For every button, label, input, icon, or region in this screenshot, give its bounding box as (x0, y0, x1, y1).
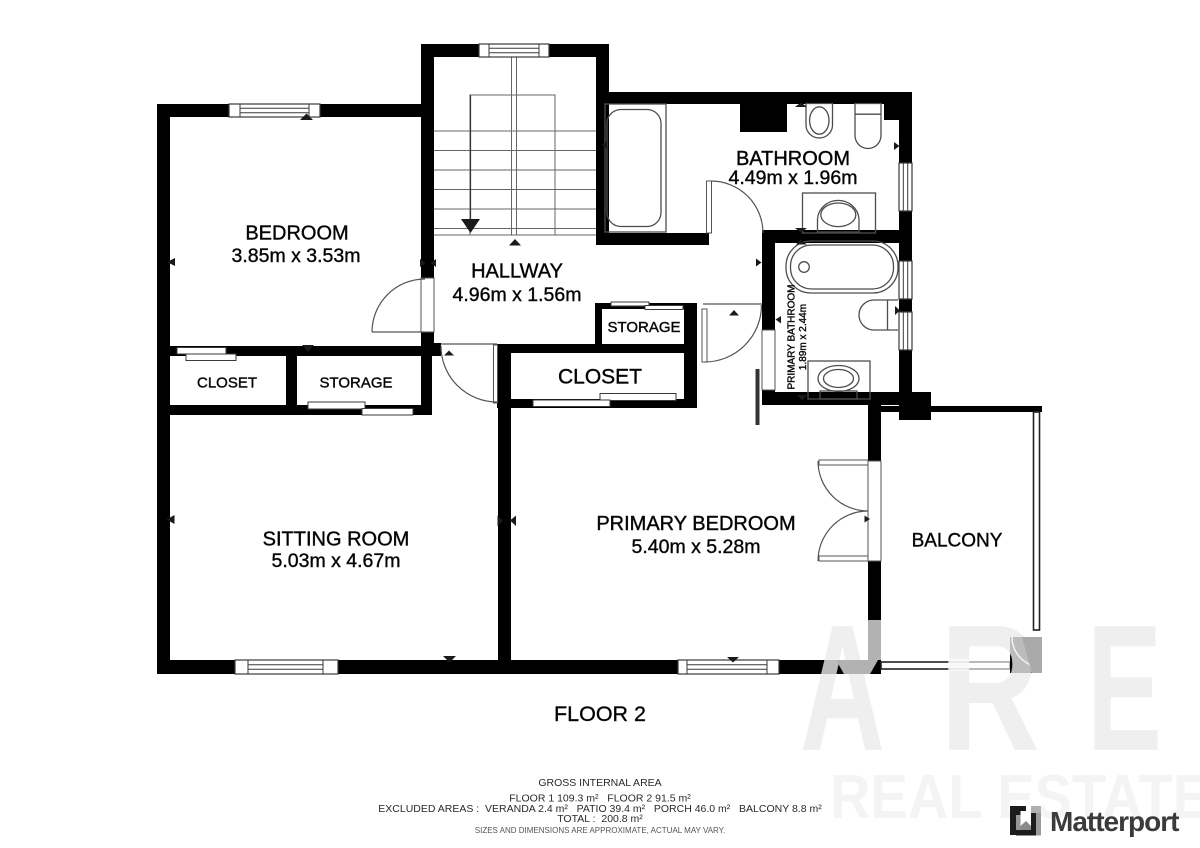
svg-text:SIZES AND DIMENSIONS ARE APPRO: SIZES AND DIMENSIONS ARE APPROXIMATE, AC… (475, 826, 725, 835)
svg-text:E: E (1087, 588, 1162, 789)
svg-text:A: A (800, 588, 885, 789)
svg-text:R: R (940, 588, 1040, 789)
svg-text:STORAGE: STORAGE (607, 319, 680, 336)
svg-text:BALCONY: BALCONY (912, 531, 1003, 552)
svg-text:PRIMARY BATHROOM: PRIMARY BATHROOM (787, 284, 798, 389)
svg-text:STORAGE: STORAGE (319, 375, 392, 392)
svg-text:3.85m x 3.53m: 3.85m x 3.53m (232, 245, 361, 267)
svg-text:GROSS INTERNAL AREA: GROSS INTERNAL AREA (538, 777, 661, 789)
svg-text:Matterport: Matterport (1050, 806, 1179, 837)
svg-text:CLOSET: CLOSET (558, 366, 642, 389)
svg-text:5.40m x 5.28m: 5.40m x 5.28m (632, 536, 761, 558)
svg-text:FLOOR 2: FLOOR 2 (554, 702, 646, 726)
svg-text:5.03m x 4.67m: 5.03m x 4.67m (272, 550, 401, 572)
svg-text:CLOSET: CLOSET (197, 375, 257, 392)
svg-text:1.89m x 2.44m: 1.89m x 2.44m (798, 304, 809, 370)
svg-text:SITTING ROOM: SITTING ROOM (263, 529, 410, 551)
svg-text:BEDROOM: BEDROOM (245, 223, 348, 245)
svg-text:4.49m x 1.96m: 4.49m x 1.96m (729, 167, 858, 189)
svg-text:PRIMARY BEDROOM: PRIMARY BEDROOM (596, 513, 795, 535)
svg-text:4.96m x 1.56m: 4.96m x 1.56m (453, 284, 582, 306)
svg-text:HALLWAY: HALLWAY (471, 261, 563, 283)
svg-text:TOTAL : 200.8 m²: TOTAL : 200.8 m² (557, 813, 643, 825)
